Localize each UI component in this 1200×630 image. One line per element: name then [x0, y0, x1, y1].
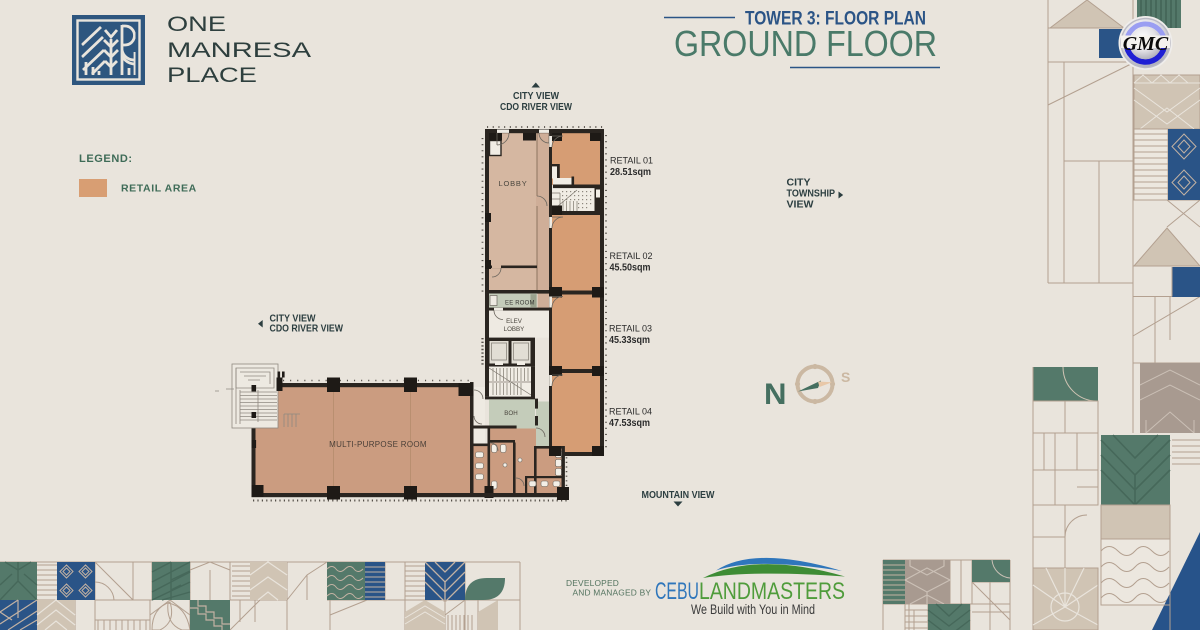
svg-text:CEBU: CEBU — [655, 578, 699, 605]
svg-text:LOBBY: LOBBY — [498, 179, 527, 188]
svg-text:RETAIL AREA: RETAIL AREA — [121, 183, 197, 195]
svg-text:CITY: CITY — [787, 178, 811, 189]
svg-text:AND MANAGED BY: AND MANAGED BY — [573, 588, 652, 598]
svg-text:MULTI-PURPOSE ROOM: MULTI-PURPOSE ROOM — [329, 440, 427, 449]
svg-text:VIEW: VIEW — [787, 200, 815, 211]
svg-text:BOH: BOH — [504, 410, 517, 417]
svg-text:45.50sqm: 45.50sqm — [610, 263, 651, 274]
svg-text:EE ROOM: EE ROOM — [505, 301, 535, 307]
svg-text:GROUND FLOOR: GROUND FLOOR — [674, 23, 937, 64]
svg-text:RETAIL 02: RETAIL 02 — [610, 251, 653, 262]
svg-text:LOBBY: LOBBY — [504, 326, 525, 333]
svg-text:N: N — [764, 378, 787, 411]
svg-text:RETAIL 01: RETAIL 01 — [610, 156, 653, 167]
svg-text:45.33sqm: 45.33sqm — [609, 335, 650, 346]
svg-text:PLACE: PLACE — [167, 64, 257, 87]
svg-text:ELEV: ELEV — [506, 318, 523, 325]
svg-text:GMC: GMC — [1123, 33, 1169, 55]
svg-text:CDO RIVER VIEW: CDO RIVER VIEW — [500, 102, 573, 113]
svg-text:RETAIL 03: RETAIL 03 — [609, 324, 652, 335]
svg-text:DEVELOPED: DEVELOPED — [566, 578, 619, 588]
svg-text:S: S — [841, 369, 850, 385]
svg-text:CDO RIVER VIEW: CDO RIVER VIEW — [270, 324, 344, 335]
svg-text:LEGEND:: LEGEND: — [79, 153, 133, 165]
svg-text:ONE: ONE — [167, 13, 226, 36]
svg-text:TOWNSHIP: TOWNSHIP — [787, 189, 836, 200]
svg-text:We Build with You in Mind: We Build with You in Mind — [691, 602, 815, 617]
svg-text:28.51sqm: 28.51sqm — [610, 167, 651, 178]
svg-text:RETAIL 04: RETAIL 04 — [609, 407, 653, 418]
svg-text:CITY VIEW: CITY VIEW — [513, 91, 560, 102]
svg-text:47.53sqm: 47.53sqm — [609, 418, 650, 429]
svg-text:LANDMASTERS: LANDMASTERS — [699, 578, 845, 605]
svg-text:MOUNTAIN VIEW: MOUNTAIN VIEW — [642, 490, 716, 501]
svg-text:MANRESA: MANRESA — [167, 39, 311, 62]
